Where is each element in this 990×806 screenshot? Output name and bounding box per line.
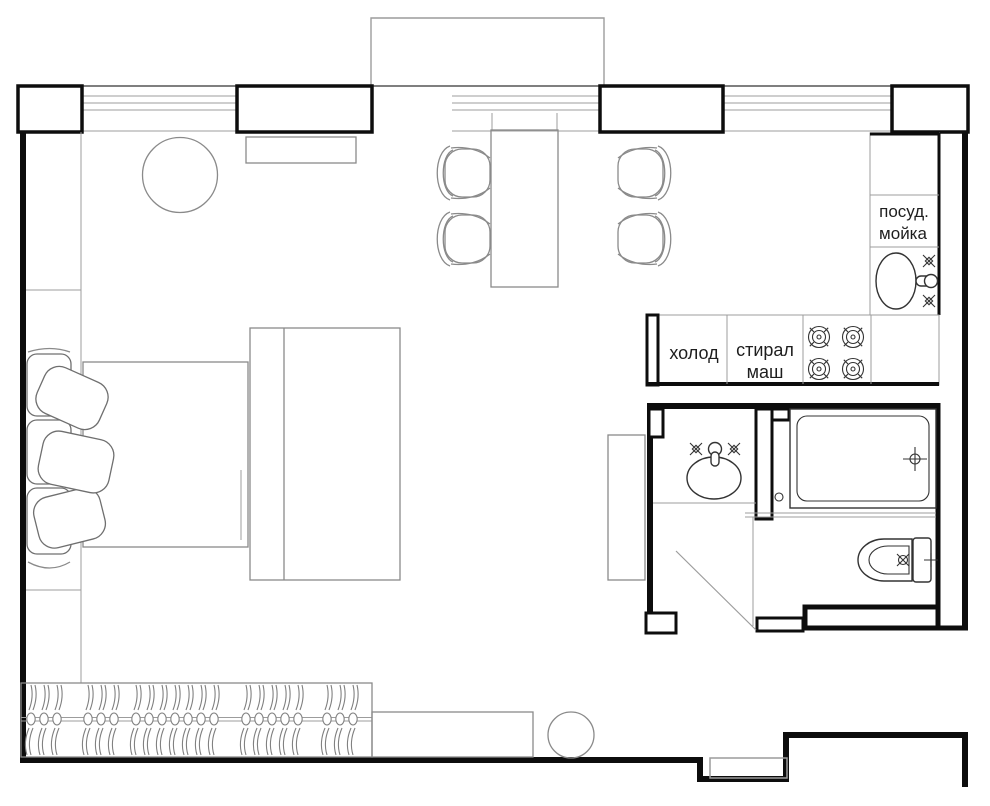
hanger-icon (347, 728, 355, 755)
hanger-icon (95, 728, 103, 755)
hanger-icon (186, 685, 193, 710)
wall-pier-2 (237, 86, 372, 132)
hanger-icon (143, 728, 151, 755)
hanger-icon (323, 713, 331, 725)
hanger-icon (145, 713, 153, 725)
hanger-icon (99, 685, 106, 710)
bathtub (790, 409, 936, 508)
hanger-icon (132, 713, 140, 725)
window-glazing-left (82, 96, 237, 110)
hanger-icon (51, 728, 59, 755)
hanger-icon (294, 713, 302, 725)
washing-machine-label-line1: стирал (736, 340, 794, 360)
hanger-icon (325, 685, 332, 710)
window-glazing-middle (452, 96, 600, 110)
hanger-icon (199, 685, 206, 710)
knob-circle (775, 493, 783, 501)
washing-machine-label-line2: маш (747, 362, 784, 382)
floor-plan-page: посуд. мойка холод стирал маш (0, 0, 990, 806)
hanger-icon (171, 713, 179, 725)
wall-pier-1 (18, 86, 82, 132)
hanger-icon (240, 728, 248, 755)
hanger-icon (130, 728, 138, 755)
bathroom (646, 403, 968, 633)
hanger-icon (29, 685, 36, 710)
stove-burner-icon (809, 359, 830, 380)
hanger-icon (97, 713, 105, 725)
hanger-icon (266, 728, 274, 755)
hanger-icon (270, 685, 277, 710)
kitchen-counter-column: посуд. мойка (870, 133, 939, 315)
hanger-icon (279, 728, 287, 755)
dining-chair (618, 146, 671, 200)
faucet-valve-icon (923, 295, 935, 307)
hangers (25, 685, 358, 755)
drain-icon (903, 447, 927, 471)
hanger-icon (351, 685, 358, 710)
hanger-icon (212, 685, 219, 710)
outer-walls (18, 86, 968, 787)
hanger-icon (321, 728, 329, 755)
bench (372, 712, 533, 757)
hanger-icon (42, 685, 49, 710)
toilet (858, 538, 938, 582)
entrance-threshold (710, 758, 787, 778)
faucet-valve-icon (728, 443, 740, 455)
hanger-icon (336, 713, 344, 725)
hanger-icon (40, 713, 48, 725)
bed (27, 349, 248, 569)
hanger-icon (55, 685, 62, 710)
dishwasher-sink-label-line1: посуд. (879, 202, 929, 221)
hanger-icon (160, 685, 167, 710)
stove-burner-icon (843, 327, 864, 348)
hanger-icon (27, 713, 35, 725)
bed-pillows (30, 361, 117, 551)
stool (548, 712, 594, 758)
wall-pier-4 (892, 86, 968, 132)
kitchen-sink (876, 253, 938, 309)
hanger-icon (197, 713, 205, 725)
kitchen-counter-row: холод стирал маш (647, 315, 939, 385)
hanger-icon (244, 685, 251, 710)
stove-burner-icon (843, 359, 864, 380)
hanger-icon (182, 728, 190, 755)
stove (809, 327, 864, 380)
wardrobe-cabinet (250, 328, 400, 580)
wall-pier-3 (600, 86, 723, 132)
hanger-icon (349, 713, 357, 725)
washbasin (653, 443, 756, 504)
hanger-icon (169, 728, 177, 755)
tv-console (608, 435, 645, 580)
hanger-icon (147, 685, 154, 710)
hanger-icon (82, 728, 90, 755)
hanger-icon (281, 713, 289, 725)
hanger-icon (296, 685, 303, 710)
hanger-icon (208, 728, 216, 755)
hanger-icon (84, 713, 92, 725)
hanger-icon (338, 685, 345, 710)
hanger-icon (86, 685, 93, 710)
hanger-icon (156, 728, 164, 755)
faucet-valve-icon (690, 443, 702, 455)
fridge-label: холод (669, 343, 719, 363)
door-swing-line (676, 551, 756, 630)
hanger-icon (268, 713, 276, 725)
hanger-icon (292, 728, 300, 755)
round-table (143, 138, 218, 213)
window-band (82, 86, 892, 131)
hanger-icon (158, 713, 166, 725)
stove-burner-icon (809, 327, 830, 348)
hanger-icon (257, 685, 264, 710)
hanger-icon (53, 713, 61, 725)
dining-chair (437, 146, 490, 200)
dining-chair (437, 212, 490, 266)
hanger-icon (210, 713, 218, 725)
hanger-icon (108, 728, 116, 755)
hanger-icon (334, 728, 342, 755)
window-glazing-right (722, 96, 892, 110)
hanger-icon (134, 685, 141, 710)
faucet-valve-icon (923, 255, 935, 267)
dining-table-set (437, 113, 671, 287)
hanger-icon (242, 713, 250, 725)
balcony-outline (371, 18, 604, 86)
hanger-icon (283, 685, 290, 710)
hanger-icon (184, 713, 192, 725)
floor-plan-svg: посуд. мойка холод стирал маш (0, 0, 990, 806)
hanger-icon (253, 728, 261, 755)
hanger-icon (110, 713, 118, 725)
radiator (246, 137, 356, 163)
dining-chair (618, 212, 671, 266)
hanger-icon (173, 685, 180, 710)
dishwasher-sink-label-line2: мойка (879, 224, 927, 243)
hanger-icon (112, 685, 119, 710)
hanger-icon (25, 728, 33, 755)
dining-table (491, 130, 558, 287)
hanger-icon (255, 713, 263, 725)
hanger-icon (38, 728, 46, 755)
hall-wardrobe (21, 683, 372, 757)
hanger-icon (195, 728, 203, 755)
bathroom-partition (756, 409, 772, 519)
